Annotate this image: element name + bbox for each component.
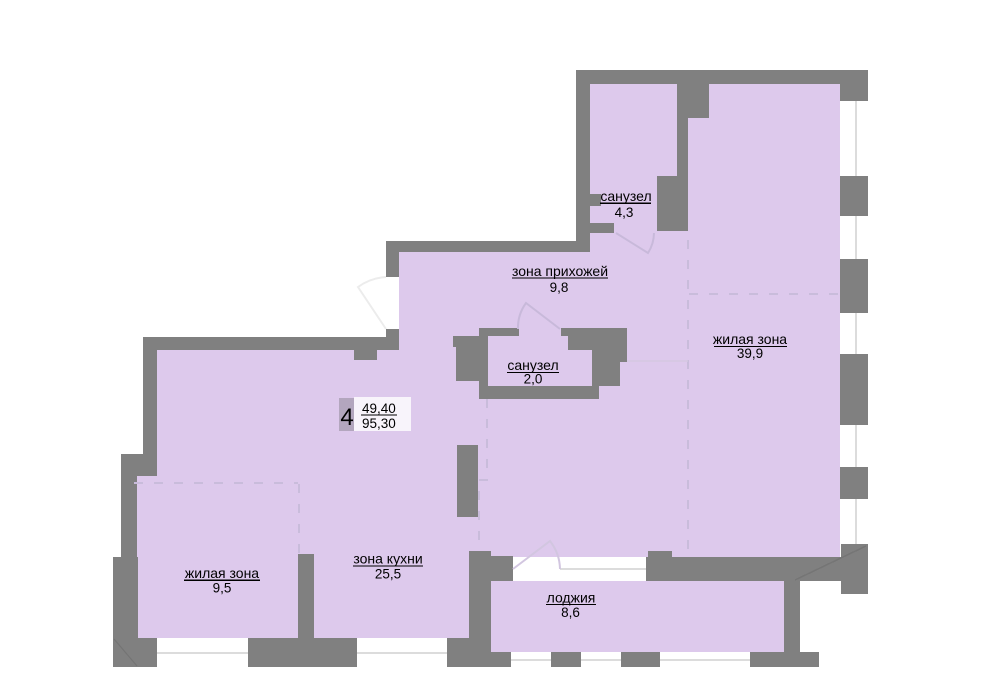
svg-text:санузел: санузел	[600, 188, 651, 204]
svg-text:25,5: 25,5	[375, 567, 401, 582]
svg-text:2,0: 2,0	[524, 372, 543, 387]
svg-text:лоджия: лоджия	[547, 590, 596, 606]
svg-text:8,6: 8,6	[561, 605, 580, 620]
svg-text:жилая зона: жилая зона	[713, 331, 787, 347]
svg-text:4: 4	[340, 404, 353, 431]
svg-text:зона кухни: зона кухни	[353, 551, 422, 567]
svg-text:95,30: 95,30	[362, 416, 396, 431]
svg-text:9,5: 9,5	[213, 581, 232, 596]
svg-text:жилая зона: жилая зона	[185, 565, 259, 581]
svg-text:зона прихожей: зона прихожей	[512, 263, 608, 279]
svg-text:49,40: 49,40	[362, 401, 396, 416]
svg-text:4,3: 4,3	[615, 205, 634, 220]
svg-text:39,9: 39,9	[737, 346, 763, 361]
svg-text:9,8: 9,8	[550, 280, 569, 295]
